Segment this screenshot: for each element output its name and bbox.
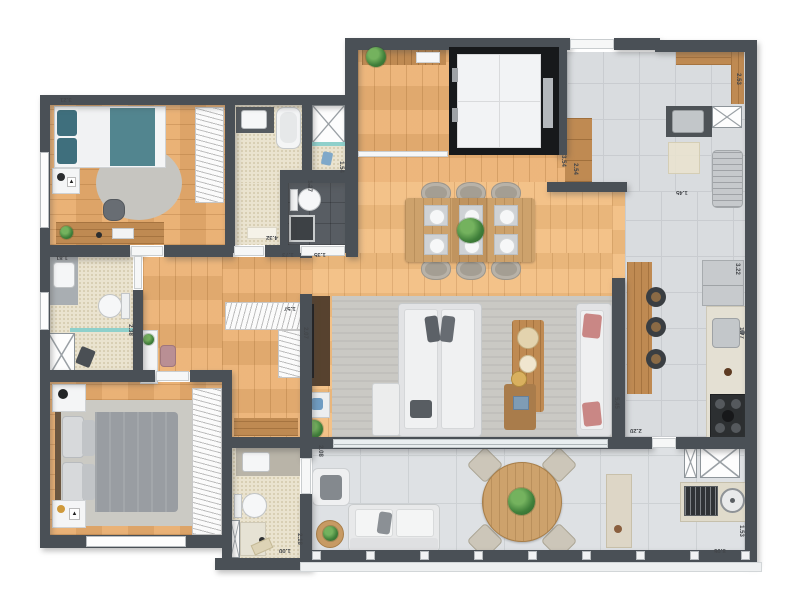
wall	[627, 437, 652, 449]
master-bath-glass	[70, 328, 133, 332]
dimension-label: 1.81	[56, 254, 68, 260]
bathroom3-basin	[242, 452, 270, 472]
dimension-label: 3.22	[734, 263, 740, 275]
dimension-label: 2.54	[572, 163, 578, 175]
bedroom1-teal-blanket	[110, 108, 155, 166]
sectional-sofa-chaise	[372, 383, 400, 436]
wall	[612, 278, 625, 449]
dimension-label: 4.32	[266, 234, 278, 240]
stove-burner-3	[715, 423, 725, 433]
railing-post	[741, 551, 750, 560]
kitchen-passage-floor	[612, 192, 625, 278]
bbq-sink-drain	[730, 498, 735, 503]
railing-post	[420, 551, 429, 560]
dimension-label: 2.38	[127, 324, 133, 336]
bedroom1-nightstand-decor: ▲	[67, 177, 76, 187]
railing-post	[528, 551, 537, 560]
master-nightstand-bottom-lamp	[57, 505, 65, 513]
washing-machine	[712, 150, 743, 208]
dimension-label: 2.20	[630, 427, 642, 433]
foyer-plant	[366, 47, 386, 67]
terrace-side-table-plant	[323, 526, 338, 541]
dimension-label: 3.21	[60, 96, 72, 102]
wall	[40, 95, 358, 105]
kitchen-bbq-door	[652, 438, 676, 448]
master-pillow-3	[82, 420, 95, 456]
railing-glass	[300, 562, 762, 572]
dimension-label: 8.06	[714, 547, 726, 553]
master-bath-door	[134, 256, 142, 289]
master-bedroom-window	[86, 536, 186, 547]
bedroom1-nightstand-lamp	[57, 173, 65, 181]
dining-centerpiece-plant	[457, 218, 484, 243]
wall	[614, 38, 660, 50]
dressing-chair	[160, 345, 176, 367]
dimension-label: 1.00	[279, 547, 291, 553]
master-nightstand-top	[52, 384, 86, 412]
master-nightstand-top-lamp	[58, 389, 68, 399]
dimension-label: 3.54	[560, 155, 566, 167]
railing-post	[690, 551, 699, 560]
elevator-door-rail-2	[452, 108, 458, 122]
wall	[133, 290, 143, 378]
bedroom1-desk-chair	[103, 199, 125, 221]
elevator-door-rail-1	[452, 68, 458, 82]
bedroom1-pillow-2	[57, 138, 77, 164]
stove-burner-1	[715, 399, 725, 409]
kitchen-stool-seat-2	[651, 322, 661, 332]
wall	[300, 294, 312, 448]
kitchen-stool-seat-3	[651, 354, 661, 364]
laundry-sink	[672, 110, 704, 133]
dimension-label: 2.18	[296, 533, 302, 545]
terrace-armchair-cushion	[320, 475, 342, 500]
master-pillow-4	[82, 464, 95, 500]
foyer-threshold	[358, 151, 448, 157]
master-headboard	[55, 410, 61, 514]
kitchen-sink	[712, 318, 740, 348]
stove-burner-center	[722, 410, 734, 422]
master-bath-toilet-tank	[121, 293, 130, 319]
dimension-label: 1.54	[338, 161, 344, 173]
wall	[655, 40, 757, 52]
stove-burner-4	[731, 423, 741, 433]
sofa2-pillow-salmon-1	[582, 313, 602, 339]
placemat-3	[494, 205, 518, 226]
wall	[302, 105, 312, 172]
bathroom3-door	[301, 458, 311, 494]
wall	[222, 437, 312, 448]
placemat-4	[424, 234, 448, 255]
railing-post	[582, 551, 591, 560]
dimension-label: 1.35	[314, 251, 326, 257]
bedroom1-sheet	[78, 108, 110, 166]
foyer-floor	[358, 48, 449, 182]
elevator-counterweight	[543, 78, 553, 128]
floor-plan: ▲	[0, 0, 800, 615]
master-nightstand-decor: ▲	[69, 508, 80, 520]
wall	[190, 370, 225, 382]
wc-shower	[289, 215, 315, 242]
wall	[280, 170, 288, 245]
master-bath-basin	[53, 262, 75, 288]
dimension-label: 1.77	[738, 327, 744, 339]
dimension-label: 1.27	[306, 180, 312, 192]
wall	[40, 370, 155, 382]
wall	[547, 182, 627, 192]
bedroom1-door	[131, 246, 163, 256]
coffee-table-book	[513, 396, 529, 410]
wall	[346, 245, 358, 257]
coffee-table-tray-2	[519, 355, 537, 373]
master-pillow-2	[62, 462, 84, 504]
terrace-runner-rug	[606, 474, 632, 548]
terrace-sliding-door	[333, 439, 608, 448]
hall-opening-floor	[300, 258, 312, 294]
master-bath-toilet-bowl	[98, 294, 122, 318]
dimension-label: 2.07	[302, 327, 308, 339]
hall-console	[234, 418, 298, 436]
wc-toilet-tank	[290, 189, 298, 211]
foyer-tray	[416, 52, 440, 63]
coffee-table-tray-1	[517, 327, 539, 349]
stove-burner-2	[731, 399, 741, 409]
dimension-label: 1.73	[282, 251, 294, 257]
railing-post	[474, 551, 483, 560]
coffee-table-tray-gold	[511, 371, 527, 387]
railing-post	[636, 551, 645, 560]
bathroom3-toilet-tank	[234, 494, 242, 518]
placemat-1	[424, 205, 448, 226]
master-duvet	[95, 412, 178, 512]
bedroom1-desk-decor	[96, 232, 102, 238]
dimension-label: 1.45	[676, 189, 688, 195]
wall	[215, 558, 312, 570]
dimension-label: 2.08	[317, 445, 323, 457]
foyer-floor-south	[449, 155, 557, 182]
laundry-mat	[668, 142, 700, 174]
wall	[745, 40, 757, 565]
bedroom1-desk-plant	[60, 226, 73, 239]
wall	[345, 38, 358, 253]
wall	[225, 105, 235, 253]
sofa-tray	[410, 400, 432, 418]
master-bath-window	[40, 292, 49, 330]
bbq-cabinet	[684, 446, 697, 478]
terrace-runner-spot	[614, 525, 622, 533]
master-bedroom-door	[156, 371, 189, 381]
terrace-table-plant	[508, 488, 535, 515]
dressing-desk-plant	[143, 334, 154, 345]
laundry-duct	[712, 106, 742, 128]
bathroom1-shower-glass	[312, 142, 345, 146]
railing-post	[312, 551, 321, 560]
bedroom1-wardrobe	[195, 107, 224, 203]
dimension-label: 1.57	[284, 305, 296, 311]
pantry-cabinet	[565, 118, 592, 182]
wall	[280, 170, 346, 183]
service-entry-door	[570, 39, 614, 49]
dimension-label: 2.53	[735, 73, 741, 85]
bathroom3-toilet-bowl	[242, 493, 267, 518]
wall	[164, 245, 233, 257]
bar-cart-bottles	[311, 398, 323, 410]
sofa2-pillow-salmon-2	[582, 401, 602, 427]
kitchen-stool-seat-1	[651, 292, 661, 302]
wall	[300, 448, 312, 458]
railing-post	[366, 551, 375, 560]
bedroom1-laptop	[112, 228, 134, 239]
bedroom1-window	[40, 152, 49, 228]
dimension-label: 5.45	[613, 397, 619, 409]
bathroom1-basin	[241, 110, 267, 129]
bathroom1-door	[234, 246, 264, 256]
placemat-6	[494, 234, 518, 255]
bbq-grill	[684, 486, 718, 516]
wall	[676, 437, 757, 449]
bbq-duct	[700, 446, 740, 478]
bathroom1-bathtub-inner	[280, 112, 297, 143]
elevator-car	[457, 54, 541, 148]
bathroom1-shower	[312, 105, 345, 143]
kitchen-counter-decor	[724, 368, 732, 376]
wall	[40, 245, 130, 257]
terrace-sofa-cushion-2	[396, 509, 434, 537]
master-pillow-1	[62, 416, 84, 458]
dimension-label: 1.53	[738, 525, 744, 537]
master-wardrobe	[192, 388, 222, 535]
bedroom1-pillow-1	[57, 110, 77, 136]
